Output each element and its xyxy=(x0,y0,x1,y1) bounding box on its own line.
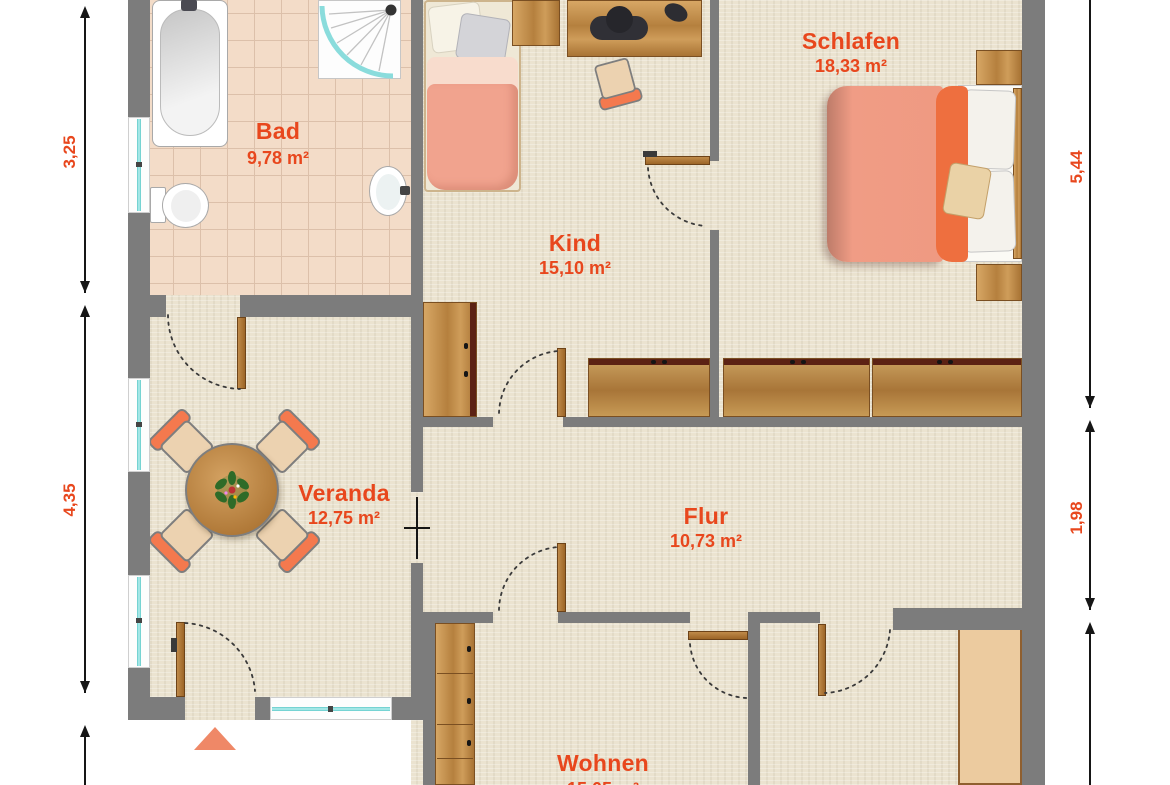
arrow-up-icon xyxy=(80,725,90,737)
arrow-down-icon xyxy=(80,281,90,293)
floor-plan: Bad 9,78 m² Kind 15,10 m² Schlafen 18,33… xyxy=(0,0,1170,785)
shower-symbol xyxy=(322,5,397,77)
arrow-down-icon xyxy=(80,681,90,693)
dimension-line xyxy=(1089,0,1091,408)
dimension-line xyxy=(84,729,86,785)
room-area-schlafen: 18,33 m² xyxy=(815,56,887,77)
door-swing-arc-flur xyxy=(499,547,559,610)
room-area-flur: 10,73 m² xyxy=(670,531,742,552)
room-label-flur: Flur xyxy=(684,503,729,530)
entrance-arrow xyxy=(194,727,236,750)
shower-tray-edge xyxy=(322,6,393,76)
door-swing-arc-bad xyxy=(168,315,240,389)
door-swing-arc-entrance xyxy=(185,623,255,691)
room-area-veranda: 12,75 m² xyxy=(308,508,380,529)
door-swing-arc-wohnen xyxy=(690,644,747,698)
plan-symbol-overlay xyxy=(0,0,1170,785)
arrow-up-icon xyxy=(1085,420,1095,432)
dimension-value: 5,44 xyxy=(1067,150,1087,183)
room-area-bad: 9,78 m² xyxy=(247,148,309,169)
dimension-line xyxy=(1089,626,1091,785)
door-swing-arc-kind xyxy=(499,351,559,413)
dimension-line xyxy=(84,10,86,293)
arrow-down-icon xyxy=(1085,598,1095,610)
shower-head-icon xyxy=(386,5,397,16)
room-label-schlafen: Schlafen xyxy=(802,28,900,55)
door-swing-arc-wohnen-2 xyxy=(825,630,890,693)
arrow-up-icon xyxy=(1085,622,1095,634)
room-label-wohnen: Wohnen xyxy=(557,750,649,777)
dimension-line xyxy=(1089,424,1091,610)
dimension-value: 1,98 xyxy=(1067,501,1087,534)
table-plant-icon xyxy=(213,471,251,509)
dimension-line xyxy=(84,309,86,693)
arrow-down-icon xyxy=(1085,396,1095,408)
dimension-value: 3,25 xyxy=(60,135,80,168)
room-area-wohnen: 15,05 m² xyxy=(567,779,639,785)
room-label-kind: Kind xyxy=(549,230,601,257)
room-label-veranda: Veranda xyxy=(298,480,390,507)
room-label-bad: Bad xyxy=(256,118,300,145)
room-area-kind: 15,10 m² xyxy=(539,258,611,279)
arrow-up-icon xyxy=(80,305,90,317)
dimension-value: 4,35 xyxy=(60,483,80,516)
door-swing-arc-schlafen xyxy=(648,168,706,226)
arrow-up-icon xyxy=(80,6,90,18)
